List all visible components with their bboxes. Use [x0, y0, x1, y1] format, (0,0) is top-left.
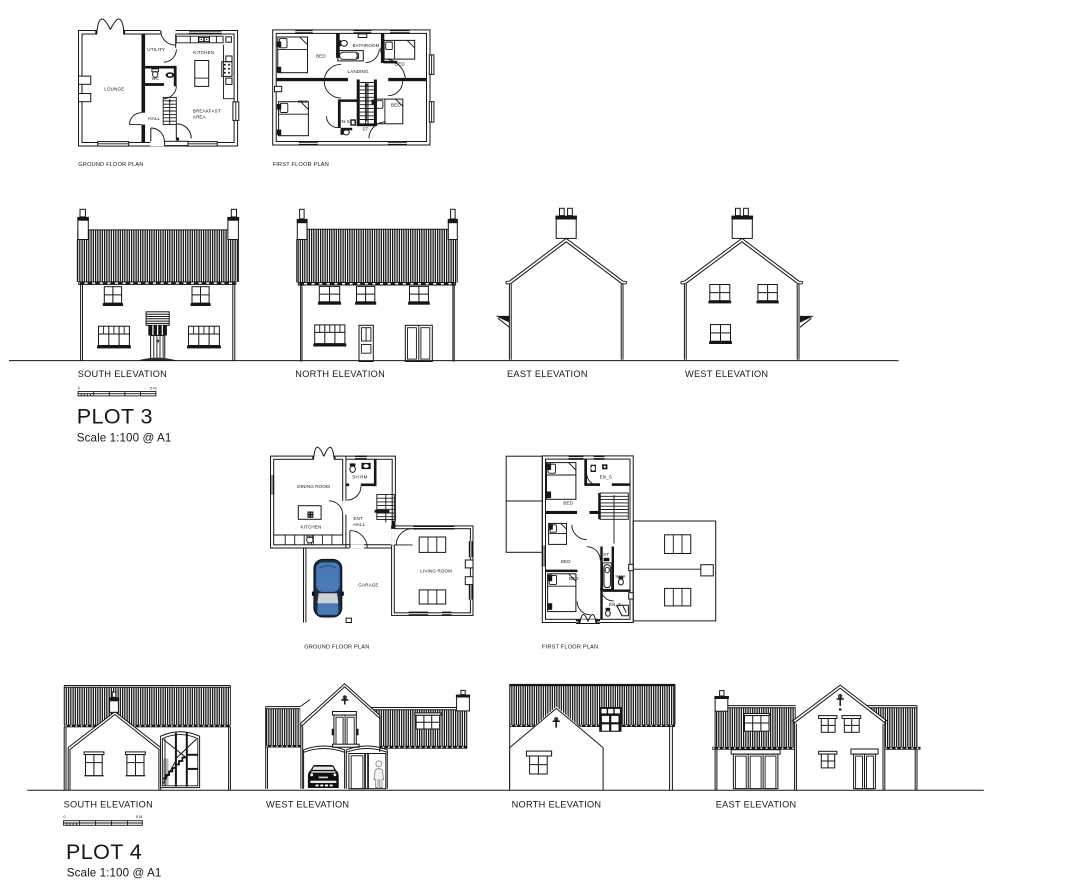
svg-text:BED: BED [563, 501, 573, 506]
svg-text:5 M: 5 M [150, 387, 156, 391]
svg-text:WC: WC [152, 76, 160, 81]
svg-text:SOUTH ELEVATION: SOUTH ELEVATION [64, 800, 153, 810]
svg-text:KITCHEN: KITCHEN [301, 525, 322, 530]
svg-text:BED: BED [391, 102, 401, 107]
svg-text:BED: BED [298, 99, 308, 104]
svg-text:BED: BED [569, 576, 579, 581]
svg-text:LOUNGE: LOUNGE [104, 87, 124, 92]
svg-text:ST: ST [603, 552, 609, 557]
svg-text:GROUND FLOOR PLAN: GROUND FLOOR PLAN [304, 645, 369, 651]
svg-text:PLOT 4: PLOT 4 [66, 840, 142, 864]
svg-text:LANDING: LANDING [348, 69, 369, 74]
svg-text:FIRST FLOOR PLAN: FIRST FLOOR PLAN [542, 645, 598, 651]
svg-text:GARAGE: GARAGE [358, 583, 378, 588]
svg-text:DINING ROOM: DINING ROOM [297, 484, 330, 489]
svg-text:BREAKFAST: BREAKFAST [193, 108, 221, 113]
svg-text:EN-S: EN-S [339, 119, 350, 124]
svg-text:HALL: HALL [353, 522, 365, 527]
svg-text:WEST ELEVATION: WEST ELEVATION [266, 800, 349, 810]
svg-text:KITCHEN: KITCHEN [193, 50, 214, 55]
svg-text:EN_S: EN_S [609, 602, 621, 607]
svg-text:PLOT 3: PLOT 3 [77, 405, 153, 429]
svg-text:SH RM: SH RM [352, 475, 367, 480]
svg-text:HALL: HALL [148, 116, 160, 121]
svg-text:ST: ST [362, 126, 368, 131]
svg-text:Scale 1:100 @ A1: Scale 1:100 @ A1 [67, 867, 162, 880]
svg-text:AREA: AREA [193, 114, 207, 119]
svg-text:BED: BED [561, 559, 571, 564]
svg-text:SOUTH ELEVATION: SOUTH ELEVATION [78, 369, 167, 379]
svg-text:EN_S: EN_S [600, 475, 612, 480]
svg-text:EAST ELEVATION: EAST ELEVATION [507, 369, 588, 379]
svg-text:Scale 1:100 @ A1: Scale 1:100 @ A1 [77, 432, 172, 445]
svg-text:BATHROOM: BATHROOM [353, 43, 380, 48]
svg-text:GROUND FLOOR PLAN: GROUND FLOOR PLAN [78, 162, 143, 168]
svg-text:ENT: ENT [353, 516, 363, 521]
svg-text:EAST ELEVATION: EAST ELEVATION [716, 800, 797, 810]
svg-text:0: 0 [78, 387, 80, 391]
svg-text:BATH: BATH [616, 575, 626, 579]
svg-text:WEST ELEVATION: WEST ELEVATION [685, 369, 768, 379]
svg-text:FIRST FLOOR PLAN: FIRST FLOOR PLAN [273, 162, 329, 168]
svg-text:LIVING ROOM: LIVING ROOM [420, 569, 452, 574]
svg-text:5 M: 5 M [136, 815, 142, 819]
svg-text:BED: BED [316, 54, 326, 59]
svg-text:NORTH ELEVATION: NORTH ELEVATION [512, 800, 602, 810]
svg-text:NORTH ELEVATION: NORTH ELEVATION [295, 369, 385, 379]
svg-text:0: 0 [63, 815, 65, 819]
svg-text:BED: BED [395, 61, 405, 66]
svg-text:UTILITY: UTILITY [147, 47, 165, 52]
